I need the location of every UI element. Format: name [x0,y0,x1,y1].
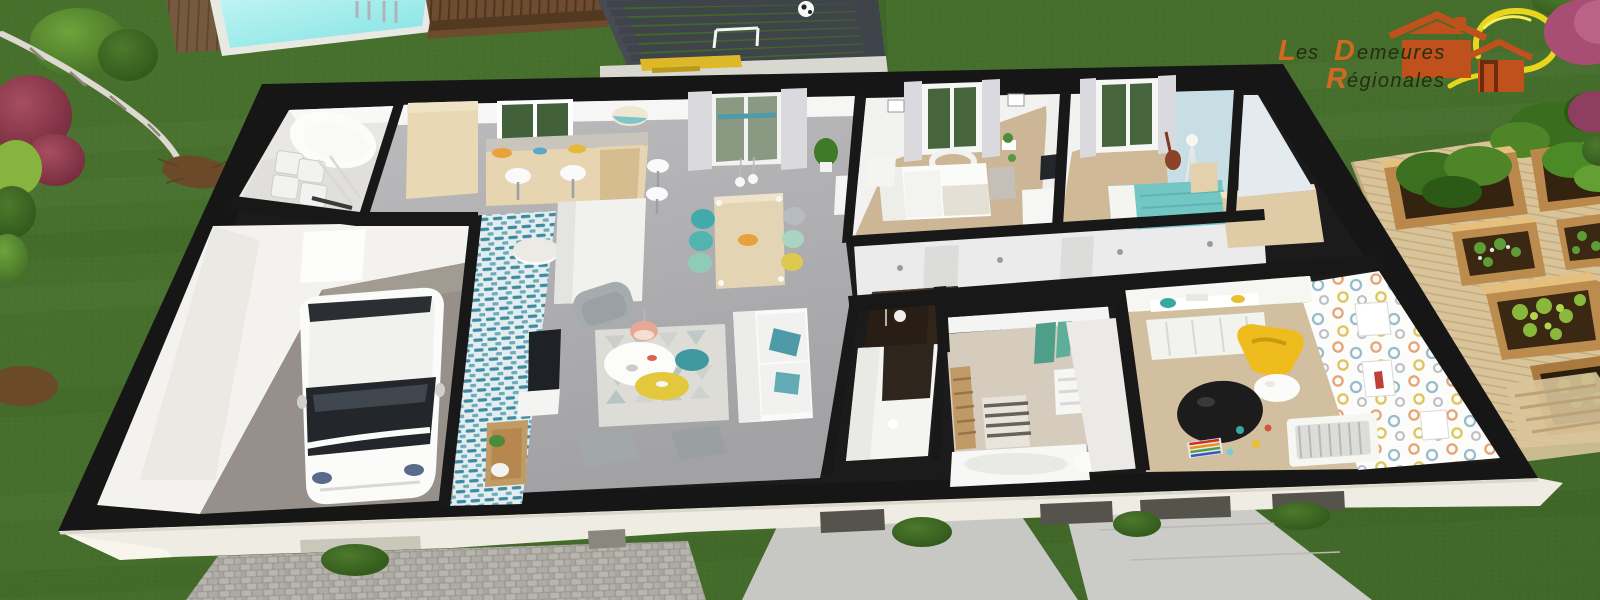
svg-text:emeures: emeures [1357,42,1446,64]
svg-text:es: es [1296,42,1319,64]
svg-text:égionales: égionales [1347,70,1445,92]
svg-text:L: L [1278,35,1296,67]
svg-text:R: R [1326,63,1347,95]
